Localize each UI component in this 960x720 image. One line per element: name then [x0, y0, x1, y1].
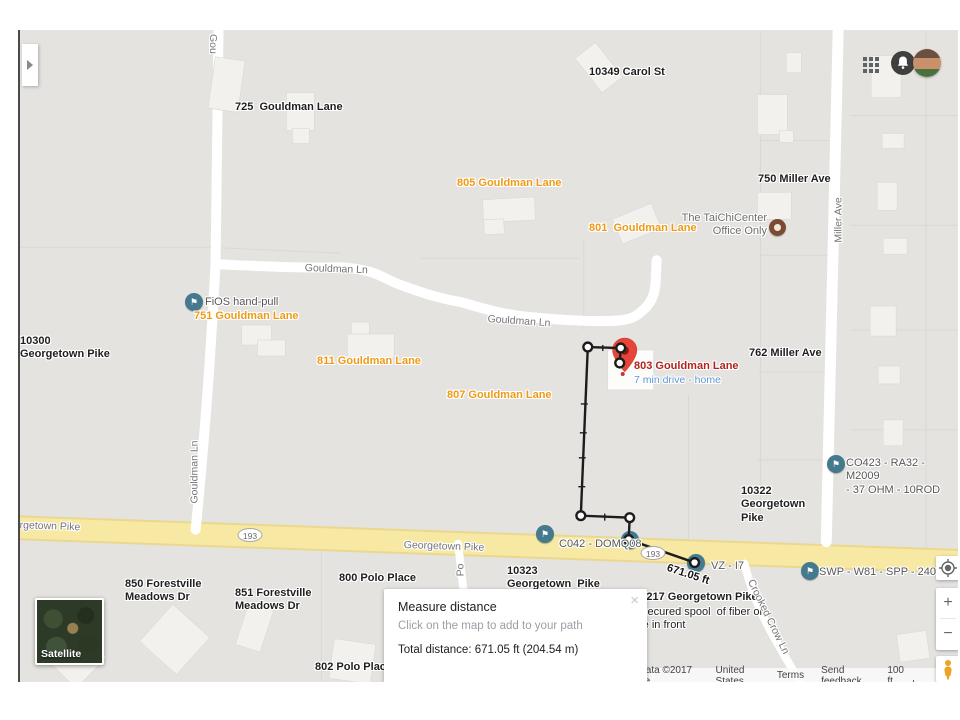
dialog-total-distance: Total distance: 671.05 ft (204.54 m) [398, 644, 633, 656]
route-shield-193: 193 [238, 528, 263, 542]
road-georgetown-mid: Georgetown Pike [404, 539, 485, 555]
expand-panel-arrow-icon [27, 60, 33, 70]
label-811-gouldman: 811 Gouldman Lane [317, 355, 421, 368]
road-gouldman-1: Gouldman Ln [305, 262, 368, 277]
dialog-hint: Click on the map to add to your path [398, 620, 633, 632]
poi-taichi-center: The TaiChiCenter Office Only [665, 212, 767, 239]
road-crooked-crow: Crooked Crow Ln [744, 577, 791, 656]
measure-distance-dialog: × Measure distance Click on the map to a… [384, 589, 647, 682]
dialog-title: Measure distance [398, 600, 633, 614]
label-750-miller: 750 Miller Ave [758, 173, 831, 186]
label-10323-georgetown: 10323 Georgetown Pike [507, 565, 600, 592]
bell-glyph [891, 51, 915, 75]
expand-panel-button[interactable] [22, 44, 38, 86]
labels-layer: 10349 Carol St725 Gouldman Lane750 Mille… [20, 30, 958, 682]
label-805-gouldman: 805 Gouldman Lane [457, 177, 562, 190]
pegman-button[interactable] [936, 656, 958, 682]
label-10322-georgetown: 10322 Georgetown Pike [741, 485, 805, 525]
zoom-control: + − [936, 588, 958, 650]
route-shield-193: 193 [641, 546, 666, 560]
note-co423: CO423 - RA32 - M2009 - 37 OHM - 10ROD [846, 457, 958, 497]
label-802-polo: 802 Polo Place [315, 661, 392, 674]
note-unsecured-spool: Unsecured spool of fiber on pole in fron… [628, 606, 766, 633]
measure-distance-label: 671.05 ft [665, 562, 711, 588]
close-icon[interactable]: × [630, 592, 639, 609]
my-location-button[interactable] [936, 556, 958, 580]
zoom-in-button[interactable]: + [936, 588, 958, 618]
label-807-gouldman: 807 Gouldman Lane [447, 389, 552, 402]
pegman-icon [936, 656, 958, 682]
label-801-gouldman: 801 Gouldman Lane [589, 222, 697, 235]
note-fios-hand-pull: FiOS hand-pull [205, 296, 278, 309]
road-miller-ave: Miller Ave [833, 197, 846, 242]
note-vz-i7: VZ - I7 [711, 560, 744, 573]
attribution-terms[interactable]: Terms [777, 670, 804, 681]
satellite-label: Satellite [41, 648, 81, 660]
satellite-toggle[interactable]: Satellite [35, 598, 104, 665]
notifications-bell-icon[interactable] [891, 51, 915, 75]
label-800-polo: 800 Polo Place [339, 572, 416, 585]
road-polo: Po [455, 564, 468, 577]
label-10300-georgetown: 10300 Georgetown Pike [20, 335, 110, 362]
apps-grid-icon[interactable] [863, 57, 879, 73]
user-avatar[interactable] [913, 49, 941, 77]
zoom-out-button[interactable]: − [936, 619, 958, 649]
label-850-forestville: 850 Forestville Meadows Dr [125, 578, 201, 605]
label-803-gouldman: 803 Gouldman Lane [634, 360, 739, 373]
attribution-united-states: United States [716, 665, 760, 683]
label-762-miller: 762 Miller Ave [749, 347, 822, 360]
note-c042: C042 - DOMQ08 [559, 538, 642, 551]
scale-label: 100 ft [887, 665, 909, 683]
road-gouldman-top: Gou [206, 34, 219, 54]
road-gouldman-2: Gouldman Ln [487, 313, 551, 330]
my-location-icon [936, 556, 958, 580]
label-10349-carol-st: 10349 Carol St [589, 66, 665, 79]
label-751-gouldman: 751 Gouldman Lane [194, 310, 299, 323]
label-725-gouldman: 725 Gouldman Lane [235, 101, 343, 114]
attribution-send-feedback[interactable]: Send feedback [821, 665, 870, 683]
label-851-forestville: 851 Forestville Meadows Dr [235, 587, 311, 614]
label-drive-time: 7 min drive - home [634, 374, 721, 387]
label-103217-georgetown: 103217 Georgetown Pike [628, 591, 758, 604]
road-georgetown-left: orgetown Pike [18, 519, 81, 534]
road-gouldman-vert: Gouldman Ln [189, 440, 202, 503]
attribution-bar: Map data ©2017 GoogleUnited StatesTermsS… [608, 668, 958, 682]
map-canvas[interactable]: ⚑⚑⚑⚑⚑⚑ 10349 Carol St725 Gouldman Lane75… [18, 30, 958, 682]
note-swp-w81: SWP - W81 - SPP - 240 [819, 566, 936, 579]
